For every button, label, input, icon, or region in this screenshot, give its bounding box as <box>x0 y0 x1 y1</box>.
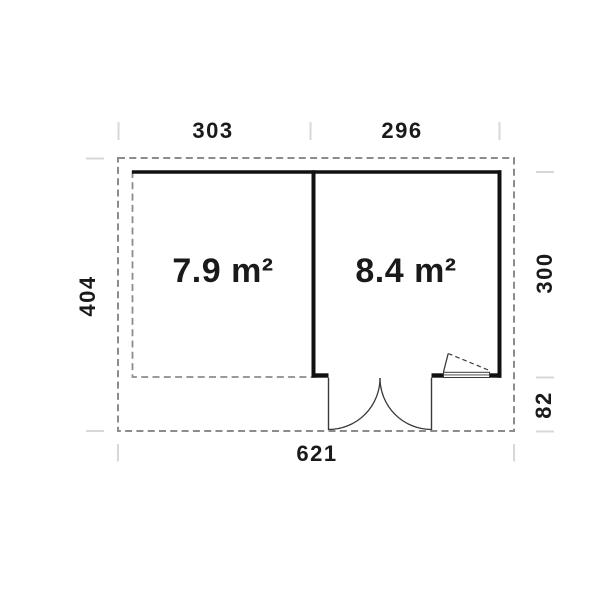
dim-right-bottom-label: 82 <box>533 391 555 418</box>
window <box>444 354 490 378</box>
outer-dashed-outline <box>118 158 514 431</box>
door-left-swing-arc <box>329 378 381 430</box>
dim-top-right-label: 296 <box>381 120 422 142</box>
dim-right-top-label: 300 <box>534 252 556 293</box>
room-area-label-left: 7.9 m² <box>172 254 273 288</box>
dim-left-label: 404 <box>77 275 99 316</box>
floor-plan: 303 296 621 404 300 82 7.9 m² 8.4 m² <box>0 0 600 600</box>
door-right-swing-arc <box>380 378 432 430</box>
dim-bottom-label: 621 <box>296 443 337 465</box>
window-hinge-edge <box>444 354 449 373</box>
room-area-label-right: 8.4 m² <box>355 254 456 288</box>
window-swing-dashed <box>448 354 489 371</box>
dim-top-left-label: 303 <box>192 120 233 142</box>
double-door <box>329 378 432 430</box>
